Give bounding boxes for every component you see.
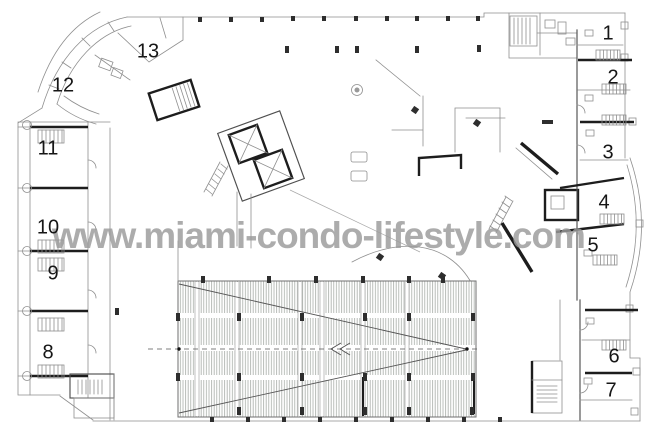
unit-label-9: 9 bbox=[47, 263, 58, 286]
floor-plan-page: www.miami-condo-lifestyle.com 1234567891… bbox=[0, 0, 648, 443]
unit-label-10: 10 bbox=[37, 217, 59, 240]
bottom-left-stair bbox=[70, 374, 114, 420]
parking-area bbox=[148, 241, 502, 422]
unit-label-3: 3 bbox=[602, 142, 613, 165]
unit-label-12: 12 bbox=[52, 75, 74, 98]
unit-label-2: 2 bbox=[607, 67, 618, 90]
unit-label-4: 4 bbox=[598, 192, 609, 215]
arc-wing bbox=[49, 17, 199, 124]
unit-label-11: 11 bbox=[38, 138, 59, 161]
unit-label-8: 8 bbox=[42, 342, 53, 365]
unit-label-5: 5 bbox=[587, 235, 598, 258]
unit-label-6: 6 bbox=[608, 346, 619, 369]
unit-label-7: 7 bbox=[605, 380, 616, 403]
unit-label-13: 13 bbox=[137, 41, 159, 64]
bottom-center-elevator bbox=[532, 300, 562, 413]
lobby-detail bbox=[115, 60, 578, 315]
left-wing bbox=[18, 121, 110, 421]
top-right-block bbox=[509, 13, 577, 58]
unit-label-1: 1 bbox=[602, 23, 613, 46]
watermark: www.miami-condo-lifestyle.com bbox=[52, 217, 585, 254]
stair-core bbox=[149, 80, 199, 120]
